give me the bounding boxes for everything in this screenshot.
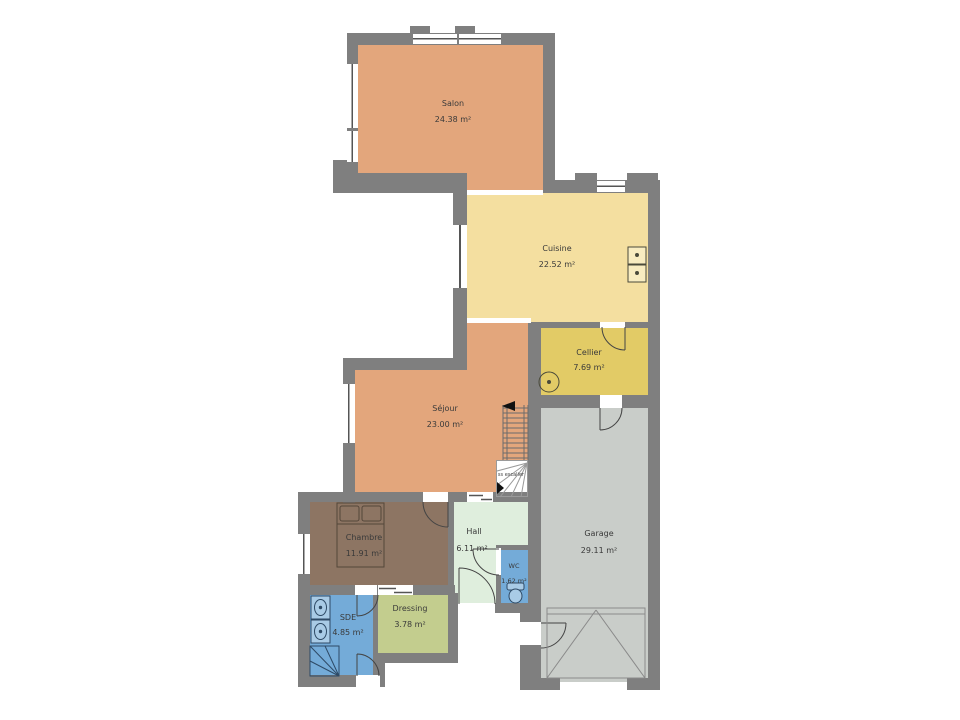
door-opening <box>458 603 495 613</box>
window <box>343 384 355 443</box>
wall <box>541 395 648 408</box>
window <box>347 64 358 128</box>
wall <box>455 26 475 34</box>
stairs-label: ss escalier <box>498 471 524 480</box>
wall <box>448 500 454 593</box>
salon-label-name: Salon <box>442 99 464 108</box>
door-opening <box>600 322 625 328</box>
sde-label-name: SDE <box>340 613 356 622</box>
chambre-label-area: 11.91 m² <box>346 549 382 558</box>
passage-opening <box>467 190 543 195</box>
garage-label-area: 29.11 m² <box>581 546 617 555</box>
room-chambre-floor <box>306 498 453 592</box>
sejour-label-name: Séjour <box>432 404 457 413</box>
wc-label-name: WC <box>509 562 520 571</box>
wall <box>541 678 560 690</box>
wall <box>373 653 458 663</box>
window <box>298 534 310 574</box>
door-opening <box>356 675 380 687</box>
cellier-label-name: Cellier <box>576 348 601 357</box>
window <box>453 225 467 288</box>
room-garage-floor <box>539 402 650 682</box>
wall <box>541 322 648 328</box>
room-sejour-floor <box>465 318 531 370</box>
window <box>413 34 457 44</box>
wall <box>528 322 541 603</box>
window <box>597 181 625 192</box>
cellier-label-area: 7.69 m² <box>573 363 604 372</box>
room-wc-floor <box>500 547 530 605</box>
window <box>347 131 358 162</box>
dressing-label-area: 3.78 m² <box>394 620 425 629</box>
door-opening <box>520 622 541 645</box>
room-salon-floor <box>352 40 548 180</box>
door-opening <box>496 548 501 575</box>
dressing-label-name: Dressing <box>393 604 428 613</box>
wall <box>373 595 378 655</box>
cuisine-label-name: Cuisine <box>542 244 571 253</box>
door-opening <box>600 395 622 408</box>
chambre-label-name: Chambre <box>346 533 382 542</box>
sejour-label-area: 23.00 m² <box>427 420 463 429</box>
hall-label-name: Hall <box>466 527 481 536</box>
wall <box>496 545 530 550</box>
cuisine-label-area: 22.52 m² <box>539 260 575 269</box>
wall <box>298 492 541 502</box>
wall <box>410 26 430 34</box>
passage-opening <box>467 318 531 323</box>
salon-label-area: 24.38 m² <box>435 115 471 124</box>
wall <box>543 180 648 193</box>
room-cuisine-floor <box>465 193 650 324</box>
wc-label-area: 1.62 m² <box>501 577 526 586</box>
door-opening <box>423 492 448 502</box>
wall <box>575 173 597 181</box>
wall <box>627 678 648 690</box>
floor-plan: Salon 24.38 m² Cuisine 22.52 m² Cellier … <box>0 0 960 720</box>
window <box>459 34 501 44</box>
room-cellier-floor <box>539 324 650 399</box>
door-opening <box>355 585 377 595</box>
door-opening <box>378 585 413 595</box>
garage-label-name: Garage <box>584 529 613 538</box>
hall-label-area: 6.11 m² <box>456 544 487 553</box>
door-opening <box>467 492 493 502</box>
wall <box>298 492 310 687</box>
wall <box>333 173 467 193</box>
wall <box>648 180 660 690</box>
wall <box>543 33 555 193</box>
wall <box>343 358 462 370</box>
sde-label-area: 4.85 m² <box>332 628 363 637</box>
